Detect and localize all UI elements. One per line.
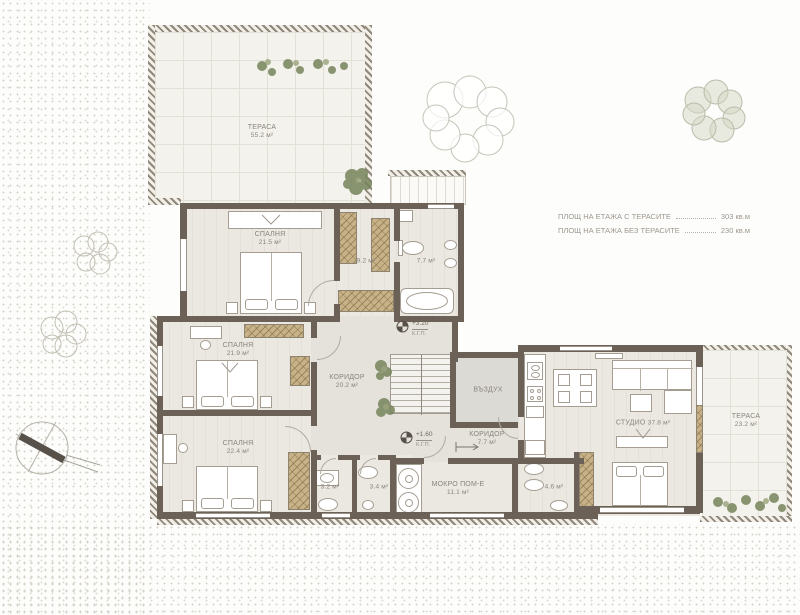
- wall: [352, 455, 357, 515]
- terrace-nw-wall-stub: [148, 198, 181, 205]
- tree-icon: [683, 80, 745, 142]
- room-label-corridor-small: КОРИДОР 7.7 м²: [469, 430, 504, 448]
- a: [537, 396, 541, 400]
- ottoman: [630, 394, 652, 412]
- wall: [696, 345, 703, 367]
- window: [157, 346, 163, 396]
- dining-table: [553, 369, 597, 407]
- bed-top: [240, 252, 302, 314]
- ar: 20.2 м²: [329, 382, 364, 390]
- oven: [526, 406, 544, 418]
- a: [275, 299, 298, 310]
- a: [531, 365, 540, 371]
- nightstand: [182, 396, 194, 408]
- terrace-nw-floor: [155, 32, 365, 203]
- a: [667, 368, 668, 391]
- legend-label: ПЛОЩ НА ЕТАЖА БЕЗ ТЕРАСИТЕ: [558, 226, 680, 235]
- bed-studio: [612, 462, 668, 506]
- room-label-wc-b: 3.4 м²: [370, 482, 389, 491]
- window: [560, 346, 612, 351]
- a: [271, 253, 272, 301]
- wardrobe: [338, 290, 394, 312]
- window: [196, 513, 270, 518]
- circle: [451, 134, 479, 162]
- window: [428, 204, 454, 209]
- level-datum: К.Г.П.: [416, 440, 432, 448]
- window: [600, 507, 684, 513]
- room-label-closet: 9.2 м²: [357, 256, 376, 265]
- wall: [157, 322, 163, 346]
- ar: 22.4 м²: [223, 448, 254, 456]
- wall: [334, 209, 340, 281]
- a: [530, 389, 534, 393]
- room-label-bath-top: 7.7 м²: [417, 256, 436, 265]
- sink: [550, 500, 568, 511]
- wall: [512, 458, 518, 516]
- room-label-terrace-e: ТЕРАСА 23.2 м²: [732, 412, 760, 430]
- circle: [710, 118, 734, 142]
- span: МОКРО ПОМ-Е: [432, 480, 485, 489]
- a: [227, 467, 228, 499]
- chair: [178, 443, 188, 453]
- a: [421, 355, 422, 415]
- ar: 23.2 м²: [732, 421, 760, 429]
- a: [580, 391, 592, 403]
- tree-icon: [423, 76, 514, 162]
- wall: [450, 352, 456, 428]
- circle: [683, 103, 705, 125]
- window: [430, 513, 504, 518]
- div: +3.20 К.Г.П.: [412, 320, 428, 337]
- ar: 7.7 м²: [417, 257, 436, 264]
- toilet: [402, 241, 424, 255]
- ar: 11.1 м²: [432, 489, 485, 497]
- wardrobe: [288, 452, 310, 510]
- ground-texture-bottom: [0, 524, 800, 615]
- ar: 21.9 м²: [223, 350, 254, 358]
- a: [201, 396, 224, 407]
- nightstand: [260, 500, 272, 512]
- span: ВЪЗДУХ: [473, 386, 502, 393]
- sink: [362, 500, 374, 510]
- balcony-rail: [388, 170, 466, 176]
- window: [696, 367, 703, 405]
- ar: 3.2 м²: [321, 483, 340, 490]
- terrace-nw-wall-right: [365, 25, 372, 205]
- a: [613, 368, 693, 369]
- room-label-bath-small: 4.6 м²: [545, 482, 564, 491]
- wall: [396, 458, 424, 464]
- bed-low: [196, 466, 258, 512]
- room-label-studio: СТУДИО 37.8 м²: [616, 418, 670, 427]
- window: [322, 513, 350, 518]
- circle: [430, 120, 460, 150]
- ar: 37.8 м²: [648, 419, 671, 426]
- circle: [473, 125, 503, 155]
- fridge: [525, 440, 545, 455]
- wall: [180, 203, 464, 209]
- circle: [423, 105, 449, 131]
- nightstand: [226, 302, 238, 314]
- path: [397, 327, 403, 333]
- wall: [157, 410, 317, 416]
- wall: [311, 455, 321, 460]
- wall: [448, 458, 518, 464]
- stairs: [390, 354, 452, 414]
- level-value: +3.20: [412, 320, 428, 328]
- a: [530, 396, 534, 400]
- wall: [394, 209, 400, 241]
- a: [558, 391, 570, 403]
- nightstand: [260, 396, 272, 408]
- a: [231, 498, 254, 509]
- benchmark-icon: [396, 320, 409, 333]
- wall: [311, 450, 317, 518]
- circle: [723, 107, 745, 129]
- a: [405, 499, 413, 507]
- terrace-e-floor: [702, 350, 787, 516]
- wall: [394, 262, 400, 322]
- span: ТЕРАСА: [732, 412, 760, 421]
- nightstand: [182, 500, 194, 512]
- legend-value: 230 кв.м: [721, 226, 750, 235]
- legend-label: ПЛОЩ НА ЕТАЖА С ТЕРАСИТЕ: [558, 212, 671, 221]
- console: [595, 353, 623, 359]
- room-label-wet-room: МОКРО ПОМ-Е 11.1 м²: [432, 480, 485, 498]
- cooktop: [527, 386, 543, 402]
- wardrobe: [244, 324, 304, 338]
- room-label-corridor-main: КОРИДОР 20.2 м²: [329, 373, 364, 391]
- room-label-bedroom-top: СПАЛНЯ 21.5 м²: [255, 230, 286, 248]
- a: [531, 372, 540, 378]
- a: [640, 475, 641, 507]
- legend-leader: [685, 232, 716, 233]
- circle: [704, 80, 728, 104]
- circle: [685, 87, 711, 113]
- wall-insulation: [157, 519, 598, 525]
- tv-console: [616, 436, 668, 448]
- terrace-nw-wall-left: [148, 25, 155, 205]
- room-label-void: ВЪЗДУХ: [473, 385, 502, 394]
- chair: [200, 340, 211, 350]
- room-label-bedroom-low: СПАЛНЯ 22.4 м²: [223, 439, 254, 457]
- balcony-floor: [390, 176, 466, 205]
- toilet-tank: [398, 240, 403, 256]
- a: [231, 396, 254, 407]
- wall: [452, 316, 458, 362]
- benchmark-icon: [400, 431, 413, 444]
- glazing-panel: [696, 405, 703, 453]
- sofa: [612, 360, 692, 390]
- div: +1.60 К.Г.П.: [416, 431, 432, 448]
- path: [407, 432, 413, 438]
- circle: [486, 108, 514, 136]
- area-legend: ПЛОЩ НА ЕТАЖА С ТЕРАСИТЕ 303 кв.м ПЛОЩ Н…: [558, 212, 750, 240]
- circle: [477, 87, 507, 117]
- a: [537, 389, 541, 393]
- dresser: [228, 211, 322, 229]
- wardrobe: [290, 356, 310, 386]
- terrace-e-rail-right: [787, 345, 792, 521]
- wall: [157, 416, 163, 434]
- a: [580, 374, 592, 386]
- circle: [427, 82, 463, 118]
- path: [403, 321, 409, 327]
- room-label-wc-a: 3.2 м²: [321, 482, 340, 491]
- floor-plan: ТЕРАСА 55.2 м² СПАЛНЯ 21.5 м² 9.2 м² 7.7…: [0, 0, 800, 615]
- ground-texture-left: [0, 0, 150, 615]
- room-label-terrace-nw: ТЕРАСА 55.2 м²: [248, 123, 276, 141]
- sofa-chaise: [664, 390, 692, 414]
- desk: [190, 326, 222, 339]
- north-arrow-icon: [6, 410, 102, 490]
- toilet: [318, 498, 338, 511]
- line: [64, 460, 98, 472]
- level-marker-upper: +3.20 К.Г.П.: [396, 320, 428, 337]
- circle: [718, 90, 742, 114]
- wall: [311, 362, 317, 412]
- a: [406, 292, 448, 310]
- legend-row: ПЛОЩ НА ЕТАЖА БЕЗ ТЕРАСИТЕ 230 кв.м: [558, 226, 750, 235]
- a: [201, 498, 224, 509]
- terrace-nw-wall-top: [148, 25, 372, 32]
- line: [20, 436, 64, 460]
- sink: [444, 240, 457, 250]
- path: [401, 438, 407, 444]
- sink: [398, 210, 413, 222]
- wall: [390, 455, 396, 515]
- ar: 9.2 м²: [357, 257, 376, 264]
- ar: 4.6 м²: [545, 483, 564, 490]
- wall: [180, 203, 187, 239]
- ar: 7.7 м²: [469, 439, 504, 447]
- wall: [518, 345, 524, 417]
- span: СПАЛНЯ: [255, 230, 286, 239]
- wall-insulation: [150, 316, 157, 519]
- wall: [334, 304, 340, 322]
- wall: [450, 352, 518, 358]
- washing-machine: [398, 468, 419, 489]
- a: [245, 299, 268, 310]
- level-datum: К.Г.П.: [412, 329, 428, 337]
- dryer: [398, 492, 419, 513]
- toilet: [524, 463, 544, 475]
- bathtub: [400, 288, 454, 314]
- circle: [454, 76, 486, 108]
- wall: [518, 440, 524, 464]
- span: СПАЛНЯ: [223, 341, 254, 350]
- vanity: [163, 434, 177, 464]
- kitchen-sink: [527, 362, 543, 380]
- wardrobe: [338, 212, 357, 264]
- level-marker-lower: +1.60 К.Г.П.: [400, 431, 432, 448]
- circle: [692, 116, 716, 140]
- window: [157, 434, 163, 486]
- span: СПАЛНЯ: [223, 439, 254, 448]
- legend-row: ПЛОЩ НА ЕТАЖА С ТЕРАСИТЕ 303 кв.м: [558, 212, 750, 221]
- level-value: +1.60: [416, 431, 432, 439]
- room-label-bedroom-mid: СПАЛНЯ 21.9 м²: [223, 341, 254, 359]
- wall: [458, 203, 464, 322]
- a: [616, 466, 637, 477]
- a: [405, 475, 413, 483]
- legend-leader: [676, 218, 716, 219]
- ar: 3.4 м²: [370, 483, 389, 490]
- span: СТУДИО: [616, 419, 646, 426]
- bidet: [524, 479, 544, 491]
- terrace-e-rail-bottom: [700, 516, 792, 522]
- span: КОРИДОР: [469, 430, 504, 439]
- span: КОРИДОР: [329, 373, 364, 382]
- line: [66, 455, 100, 465]
- bed-mid: [196, 360, 258, 410]
- bidet: [444, 258, 457, 268]
- window: [180, 239, 187, 291]
- wall: [311, 416, 317, 426]
- span: ТЕРАСА: [248, 123, 276, 132]
- terrace-e-rail-top: [700, 345, 792, 350]
- legend-value: 303 кв.м: [721, 212, 750, 221]
- a: [227, 361, 228, 397]
- a: [643, 466, 664, 477]
- a: [640, 368, 641, 391]
- wall: [696, 453, 703, 513]
- a: [558, 374, 570, 386]
- ar: 21.5 м²: [255, 239, 286, 247]
- ar: 55.2 м²: [248, 132, 276, 140]
- wall: [157, 316, 334, 322]
